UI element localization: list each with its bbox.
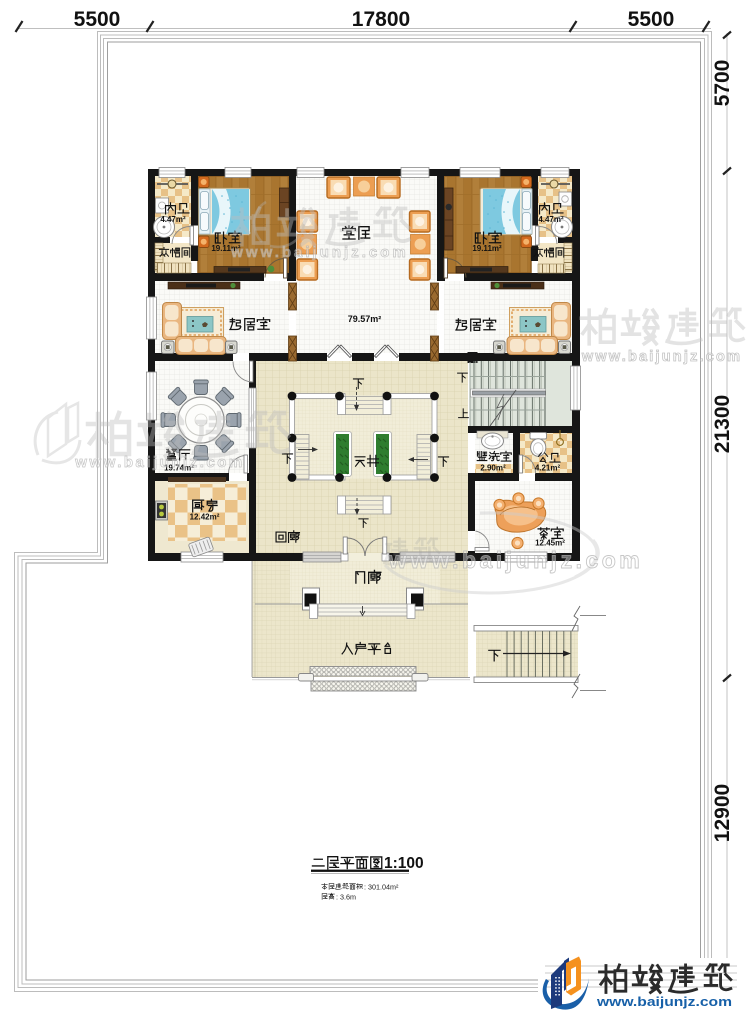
svg-text:5500: 5500 [74, 8, 121, 31]
svg-text:2.90m²: 2.90m² [480, 464, 506, 473]
svg-text:17800: 17800 [352, 8, 410, 31]
svg-text:12900: 12900 [711, 784, 734, 842]
svg-text:4.47m²: 4.47m² [538, 215, 564, 224]
svg-text:www.baijunjz.com: www.baijunjz.com [596, 994, 732, 1009]
svg-text:19.11m²: 19.11m² [472, 244, 502, 253]
svg-text:www.baijunjz.com: www.baijunjz.com [388, 547, 644, 573]
svg-text:5700: 5700 [711, 60, 734, 107]
svg-text:12.42m²: 12.42m² [190, 513, 220, 522]
svg-text:: 301.04m²: : 301.04m² [364, 882, 399, 891]
svg-text:: 3.6m: : 3.6m [336, 892, 356, 901]
svg-text:4.47m²: 4.47m² [160, 215, 186, 224]
svg-text:www.baijunjz.com: www.baijunjz.com [581, 349, 742, 365]
svg-text:4.21m²: 4.21m² [535, 464, 561, 473]
svg-text:www.baijunjz.com: www.baijunjz.com [230, 244, 408, 261]
svg-text:79.57m²: 79.57m² [348, 314, 382, 324]
svg-text:21300: 21300 [711, 395, 734, 453]
svg-text:1:100: 1:100 [384, 855, 424, 872]
svg-text:www.baijunjz.com: www.baijunjz.com [74, 454, 244, 471]
svg-text:5500: 5500 [628, 8, 675, 31]
